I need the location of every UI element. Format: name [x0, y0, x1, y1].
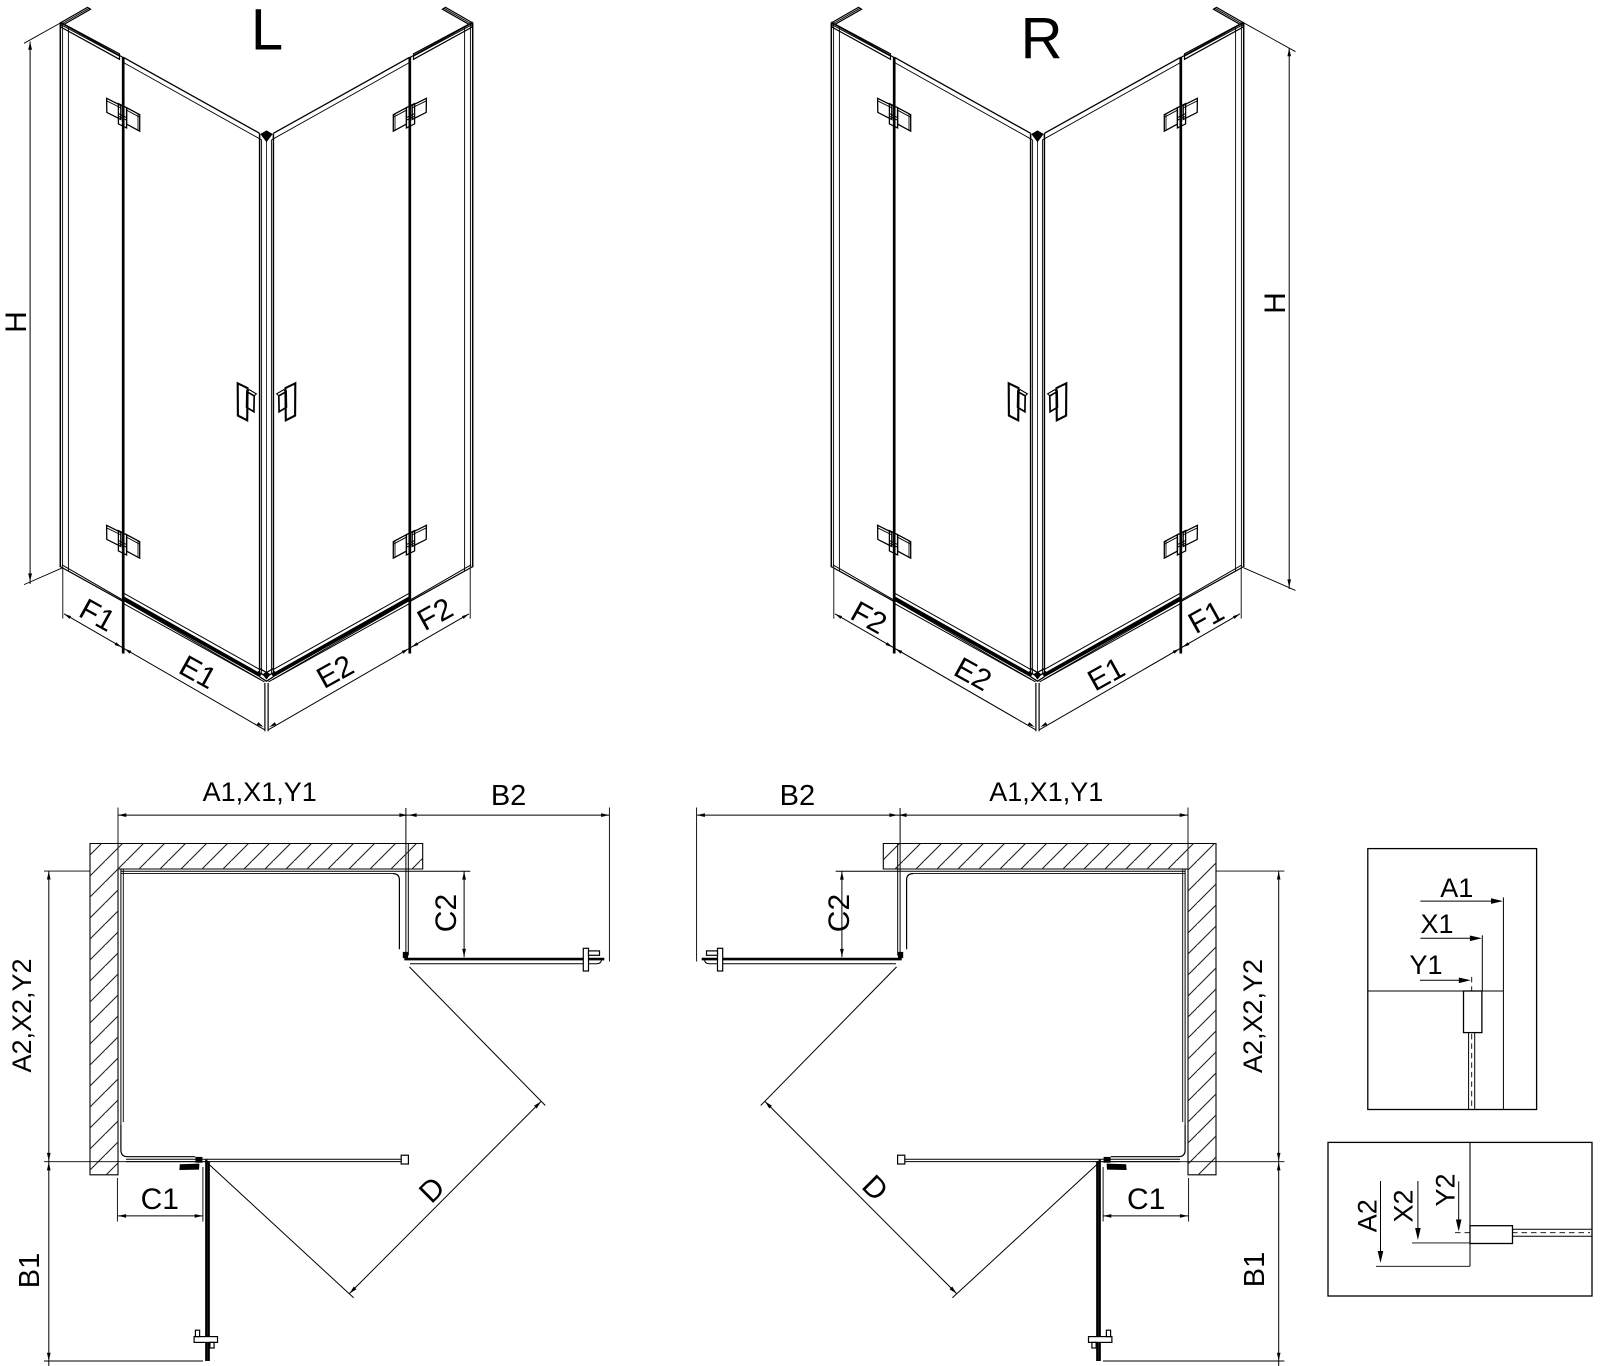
svg-text:X1: X1	[1420, 909, 1453, 939]
svg-text:A1,X1,Y1: A1,X1,Y1	[203, 777, 317, 807]
svg-text:C1: C1	[1127, 1183, 1165, 1216]
svg-text:Y1: Y1	[1409, 950, 1442, 980]
svg-text:Y2: Y2	[1430, 1173, 1460, 1206]
svg-text:X2: X2	[1388, 1189, 1418, 1222]
svg-text:B2: B2	[491, 780, 526, 812]
svg-text:B1: B1	[1239, 1252, 1271, 1287]
svg-text:A1: A1	[1440, 873, 1473, 903]
svg-text:C2: C2	[430, 894, 463, 932]
svg-text:B1: B1	[14, 1253, 46, 1288]
svg-text:R: R	[1021, 6, 1063, 71]
svg-text:C2: C2	[823, 894, 856, 932]
svg-text:B2: B2	[780, 780, 815, 812]
svg-text:A1,X1,Y1: A1,X1,Y1	[989, 777, 1103, 807]
svg-text:L: L	[251, 0, 283, 63]
svg-text:H: H	[0, 311, 33, 333]
svg-text:A2,X2,Y2: A2,X2,Y2	[7, 958, 37, 1072]
svg-text:A2,X2,Y2: A2,X2,Y2	[1238, 959, 1268, 1073]
svg-text:A2: A2	[1353, 1199, 1383, 1232]
svg-text:H: H	[1259, 292, 1292, 314]
svg-text:C1: C1	[141, 1183, 179, 1216]
